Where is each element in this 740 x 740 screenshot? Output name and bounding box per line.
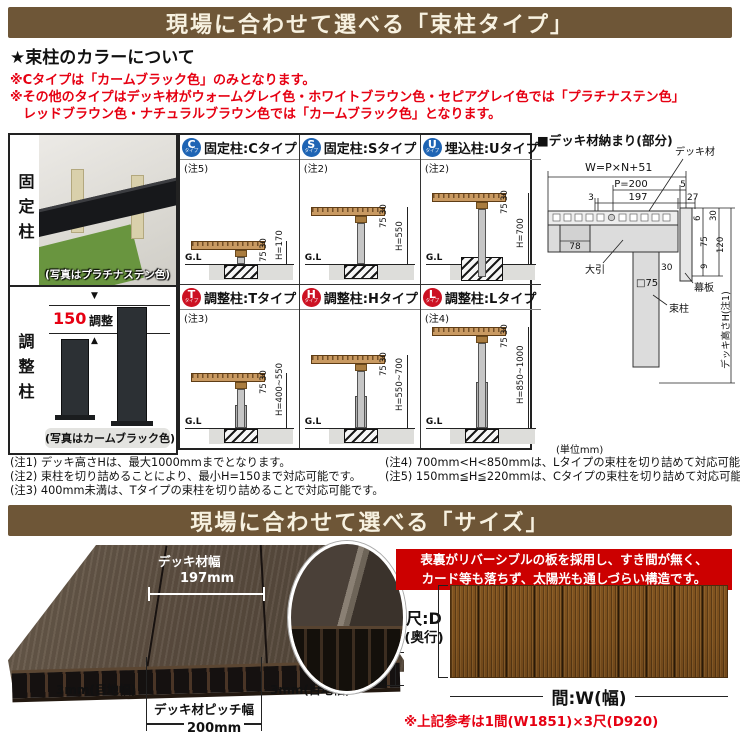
deck-width-value: 197mm <box>180 571 234 586</box>
dim-3: 3 <box>588 193 594 203</box>
pitch-label: デッキ材ピッチ幅 <box>154 699 254 718</box>
type-cell-h-header: Hタイプ 調整柱:Hタイプ <box>300 285 420 310</box>
arrow-down-icon: ▼ <box>91 292 98 301</box>
type-cell-h-diagram: G.L 30 75 H=550~700 <box>305 309 415 445</box>
dim-w-formula: W=P×N+51 <box>585 161 652 174</box>
dim-p200: P=200 <box>614 179 648 190</box>
l-type-badge-icon: Lタイプ <box>423 288 442 307</box>
type-cell-t: Tタイプ 調整柱:Tタイプ (注3) G.L 30 75 H=400~550 <box>180 285 300 448</box>
pitch-tick-left <box>146 657 147 731</box>
arrow-up-icon: ▲ <box>91 337 98 346</box>
dim-75: 75 <box>700 236 710 247</box>
type-cell-c: Cタイプ 固定柱:Cタイプ (注5) G.L 30 75 H=170 <box>180 135 300 285</box>
width-label: 間:W(幅) <box>551 684 626 709</box>
footnote-4: (注4) 700mm<H<850mmは、Lタイプの束柱を切り詰めて対応可能です。 <box>385 456 740 470</box>
dim-board-thickness: 30 <box>500 324 510 335</box>
adjust-post-label: 調整柱 <box>10 287 39 453</box>
dim-height: H=400~550 <box>275 363 285 416</box>
deck-plan-view <box>450 585 728 678</box>
badge-sub: タイプ <box>426 300 440 305</box>
type-cell-t-diagram: G.L 30 75 H=400~550 <box>185 309 294 445</box>
type-cell-u-title: 埋込柱:Uタイプ <box>445 138 539 157</box>
ground-level-label: G.L <box>185 417 202 427</box>
depth-dim-bracket <box>438 585 448 678</box>
type-cell-c-header: Cタイプ 固定柱:Cタイプ <box>180 135 299 160</box>
fixed-post-photo: (写真はプラチナステン色) <box>39 135 176 285</box>
footnote-2: (注2) 束柱を切り詰めることにより、最小H=150まで対応可能です。 <box>10 470 384 484</box>
feature-line-1: 表裏がリバーシブルの板を採用し、すき間が無く、 <box>396 551 732 570</box>
type-cell-s: Sタイプ 固定柱:Sタイプ (注2) G.L 30 75 H=550 <box>300 135 421 285</box>
banner-post-type: 現場に合わせて選べる「束柱タイプ」 <box>8 7 732 38</box>
deck-width-label: デッキ材幅 <box>158 551 221 570</box>
type-cell-u-diagram: G.L 30 75 H=700 <box>426 159 536 281</box>
dim-197: 197 <box>628 192 647 203</box>
color-note-3: レッドブラウン色・ナチュラルブラウン色では「カームブラック色」となります。 <box>23 103 501 122</box>
type-cell-h-title: 調整柱:Hタイプ <box>324 288 418 307</box>
width-dim-line-left <box>450 696 543 698</box>
post-type-table: Cタイプ 固定柱:Cタイプ (注5) G.L 30 75 H=170 Sタイプ … <box>178 133 532 450</box>
ground-level-label: G.L <box>305 417 322 427</box>
fixed-post-caption: (写真はプラチナステン色) <box>39 267 176 282</box>
s-type-badge-icon: Sタイプ <box>302 138 321 157</box>
adjust-range-label: 調整 <box>89 312 113 329</box>
dim-9: 9 <box>700 264 710 269</box>
type-cell-u: Uタイプ 埋込柱:Uタイプ (注2) G.L 30 75 H=700 <box>421 135 541 285</box>
banner-size-text: 現場に合わせて選べる「サイズ」 <box>190 505 549 537</box>
tsukabashira-label: 束柱 <box>669 302 689 315</box>
type-cell-s-diagram: G.L 30 75 H=550 <box>305 159 415 281</box>
dim-sq75: □75 <box>636 278 658 289</box>
ground-level-label: G.L <box>305 253 322 263</box>
dim-6: 6 <box>693 216 703 221</box>
dim-30-top: 30 <box>709 210 719 221</box>
ground-level-label: G.L <box>426 253 443 263</box>
type-cell-t-header: Tタイプ 調整柱:Tタイプ <box>180 285 299 310</box>
u-type-badge-icon: Uタイプ <box>423 138 442 157</box>
type-cell-s-title: 固定柱:Sタイプ <box>324 138 417 157</box>
deck-detail-diagram: W=P×N+51 P=200 5 3 197 27 デッキ材 78 □75 大引… <box>533 145 739 445</box>
deck-width-tick-left <box>148 587 150 601</box>
dim-height: H=850~1000 <box>516 346 526 405</box>
type-cell-s-header: Sタイプ 固定柱:Sタイプ <box>300 135 420 160</box>
dim-joist-depth: 75 <box>259 251 269 262</box>
type-cell-l-diagram: G.L 30 75 H=850~1000 <box>426 309 536 445</box>
type-cell-l: Lタイプ 調整柱:Lタイプ (注4) G.L 30 75 H=850~1000 <box>421 285 541 448</box>
badge-sub: タイプ <box>185 300 199 305</box>
adjust-range-value: 150 <box>53 309 86 328</box>
dim-27: 27 <box>687 193 698 203</box>
dim-joist-depth: 75 <box>259 383 269 394</box>
dim-5: 5 <box>680 180 686 190</box>
page-root: 現場に合わせて選べる「束柱タイプ」 ★束柱のカラーについて ※Cタイプは「カーム… <box>0 0 740 740</box>
post-photo-panel: 固定柱 (写真はプラチナステン色) 調整柱 ▼ ▲ 150 調整 <box>8 133 178 455</box>
badge-sub: タイプ <box>426 150 440 155</box>
size-reference-note: ※上記参考は1間(W1851)×3尺(D920) <box>404 710 658 730</box>
fixed-post-cell: 固定柱 (写真はプラチナステン色) <box>10 135 176 287</box>
dim-board-thickness: 30 <box>379 352 389 363</box>
adjustable-post-tall <box>117 307 147 425</box>
post-base-tall <box>111 421 153 426</box>
adjustable-post-short <box>61 339 89 419</box>
t-type-badge-icon: Tタイプ <box>182 288 201 307</box>
deck-width-tick-right <box>263 587 265 601</box>
dim-board-thickness: 30 <box>500 190 510 201</box>
deck-height-label: デッキ高さH(注1) <box>720 291 732 369</box>
dim-joist-depth: 75 <box>500 203 510 214</box>
type-cell-h: Hタイプ 調整柱:Hタイプ G.L 30 75 H=550~700 <box>300 285 421 448</box>
h-type-badge-icon: Hタイプ <box>302 288 321 307</box>
ground-level-label: G.L <box>426 417 443 427</box>
footnotes-left: (注1) デッキ高さHは、最大1000mmまでとなります。 (注2) 束柱を切り… <box>10 456 384 497</box>
dim-board-thickness: 30 <box>259 238 269 249</box>
dim-78: 78 <box>569 242 581 252</box>
dim-height: H=170 <box>275 230 285 260</box>
pitch-value: 200mm <box>184 721 244 736</box>
footnote-3: (注3) 400mm未満は、Tタイプの束柱を切り詰めることで対応可能です。 <box>10 484 384 498</box>
type-cell-c-diagram: G.L 30 75 H=170 <box>185 159 294 281</box>
adjust-dim-line-top <box>49 305 170 306</box>
banner-size: 現場に合わせて選べる「サイズ」 <box>8 505 732 536</box>
dim-30-bottom: 30 <box>661 263 673 273</box>
type-cell-l-title: 調整柱:Lタイプ <box>445 288 536 307</box>
adjust-post-illustration: ▼ ▲ 150 調整 (写真はカームブラック色) <box>39 287 176 453</box>
dim-joist-depth: 75 <box>379 217 389 228</box>
dim-board-thickness: 30 <box>259 370 269 381</box>
color-section-heading: ★束柱のカラーについて <box>10 43 195 68</box>
adjust-post-caption: (写真はカームブラック色) <box>45 428 170 448</box>
badge-sub: タイプ <box>305 300 319 305</box>
joint-width-left: 3mm(目地幅) <box>56 681 136 698</box>
adjust-post-cell: 調整柱 ▼ ▲ 150 調整 (写真はカームブラック色) <box>10 287 176 453</box>
dim-joist-depth: 75 <box>500 337 510 348</box>
width-dim-line-right <box>635 696 728 698</box>
deck-width-dim-line <box>148 593 264 595</box>
type-cell-u-header: Uタイプ 埋込柱:Uタイプ <box>421 135 541 160</box>
badge-sub: タイプ <box>305 150 319 155</box>
pitch-tick-right <box>261 657 262 731</box>
dim-board-thickness: 30 <box>379 204 389 215</box>
obiki-label: 大引 <box>585 263 605 276</box>
type-cell-c-title: 固定柱:Cタイプ <box>204 138 297 157</box>
dim-height: H=550~700 <box>395 358 405 411</box>
fixed-post-label: 固定柱 <box>10 135 39 285</box>
type-cell-l-header: Lタイプ 調整柱:Lタイプ <box>421 285 541 310</box>
type-cell-t-title: 調整柱:Tタイプ <box>204 288 296 307</box>
width-dim-row: 間:W(幅) <box>450 684 728 709</box>
footnote-5: (注5) 150mm≦H≦220mmは、Cタイプの束柱を切り詰めて対応可能です。 <box>385 470 740 484</box>
inset-cross-section <box>291 626 403 691</box>
reversible-feature-box: 表裏がリバーシブルの板を採用し、すき間が無く、 カード等も落ちず、太陽光も通しづ… <box>396 549 732 590</box>
post-base-short <box>55 415 95 420</box>
makuita-label: 幕板 <box>694 281 714 294</box>
ground-level-label: G.L <box>185 253 202 263</box>
footnote-1: (注1) デッキ高さHは、最大1000mmまでとなります。 <box>10 456 384 470</box>
badge-sub: タイプ <box>185 150 199 155</box>
dim-height: H=550 <box>395 221 405 251</box>
adjust-dim-line-bottom <box>49 333 170 334</box>
dim-joist-depth: 75 <box>379 365 389 376</box>
joint-closeup-inset <box>288 541 406 694</box>
banner-post-type-text: 現場に合わせて選べる「束柱タイプ」 <box>166 7 574 39</box>
dim-120: 120 <box>716 237 726 253</box>
deck-material-label: デッキ材 <box>675 145 715 158</box>
footnotes-right: (注4) 700mm<H<850mmは、Lタイプの束柱を切り詰めて対応可能です。… <box>385 456 740 484</box>
c-type-badge-icon: Cタイプ <box>182 138 201 157</box>
dim-height: H=700 <box>516 218 526 248</box>
